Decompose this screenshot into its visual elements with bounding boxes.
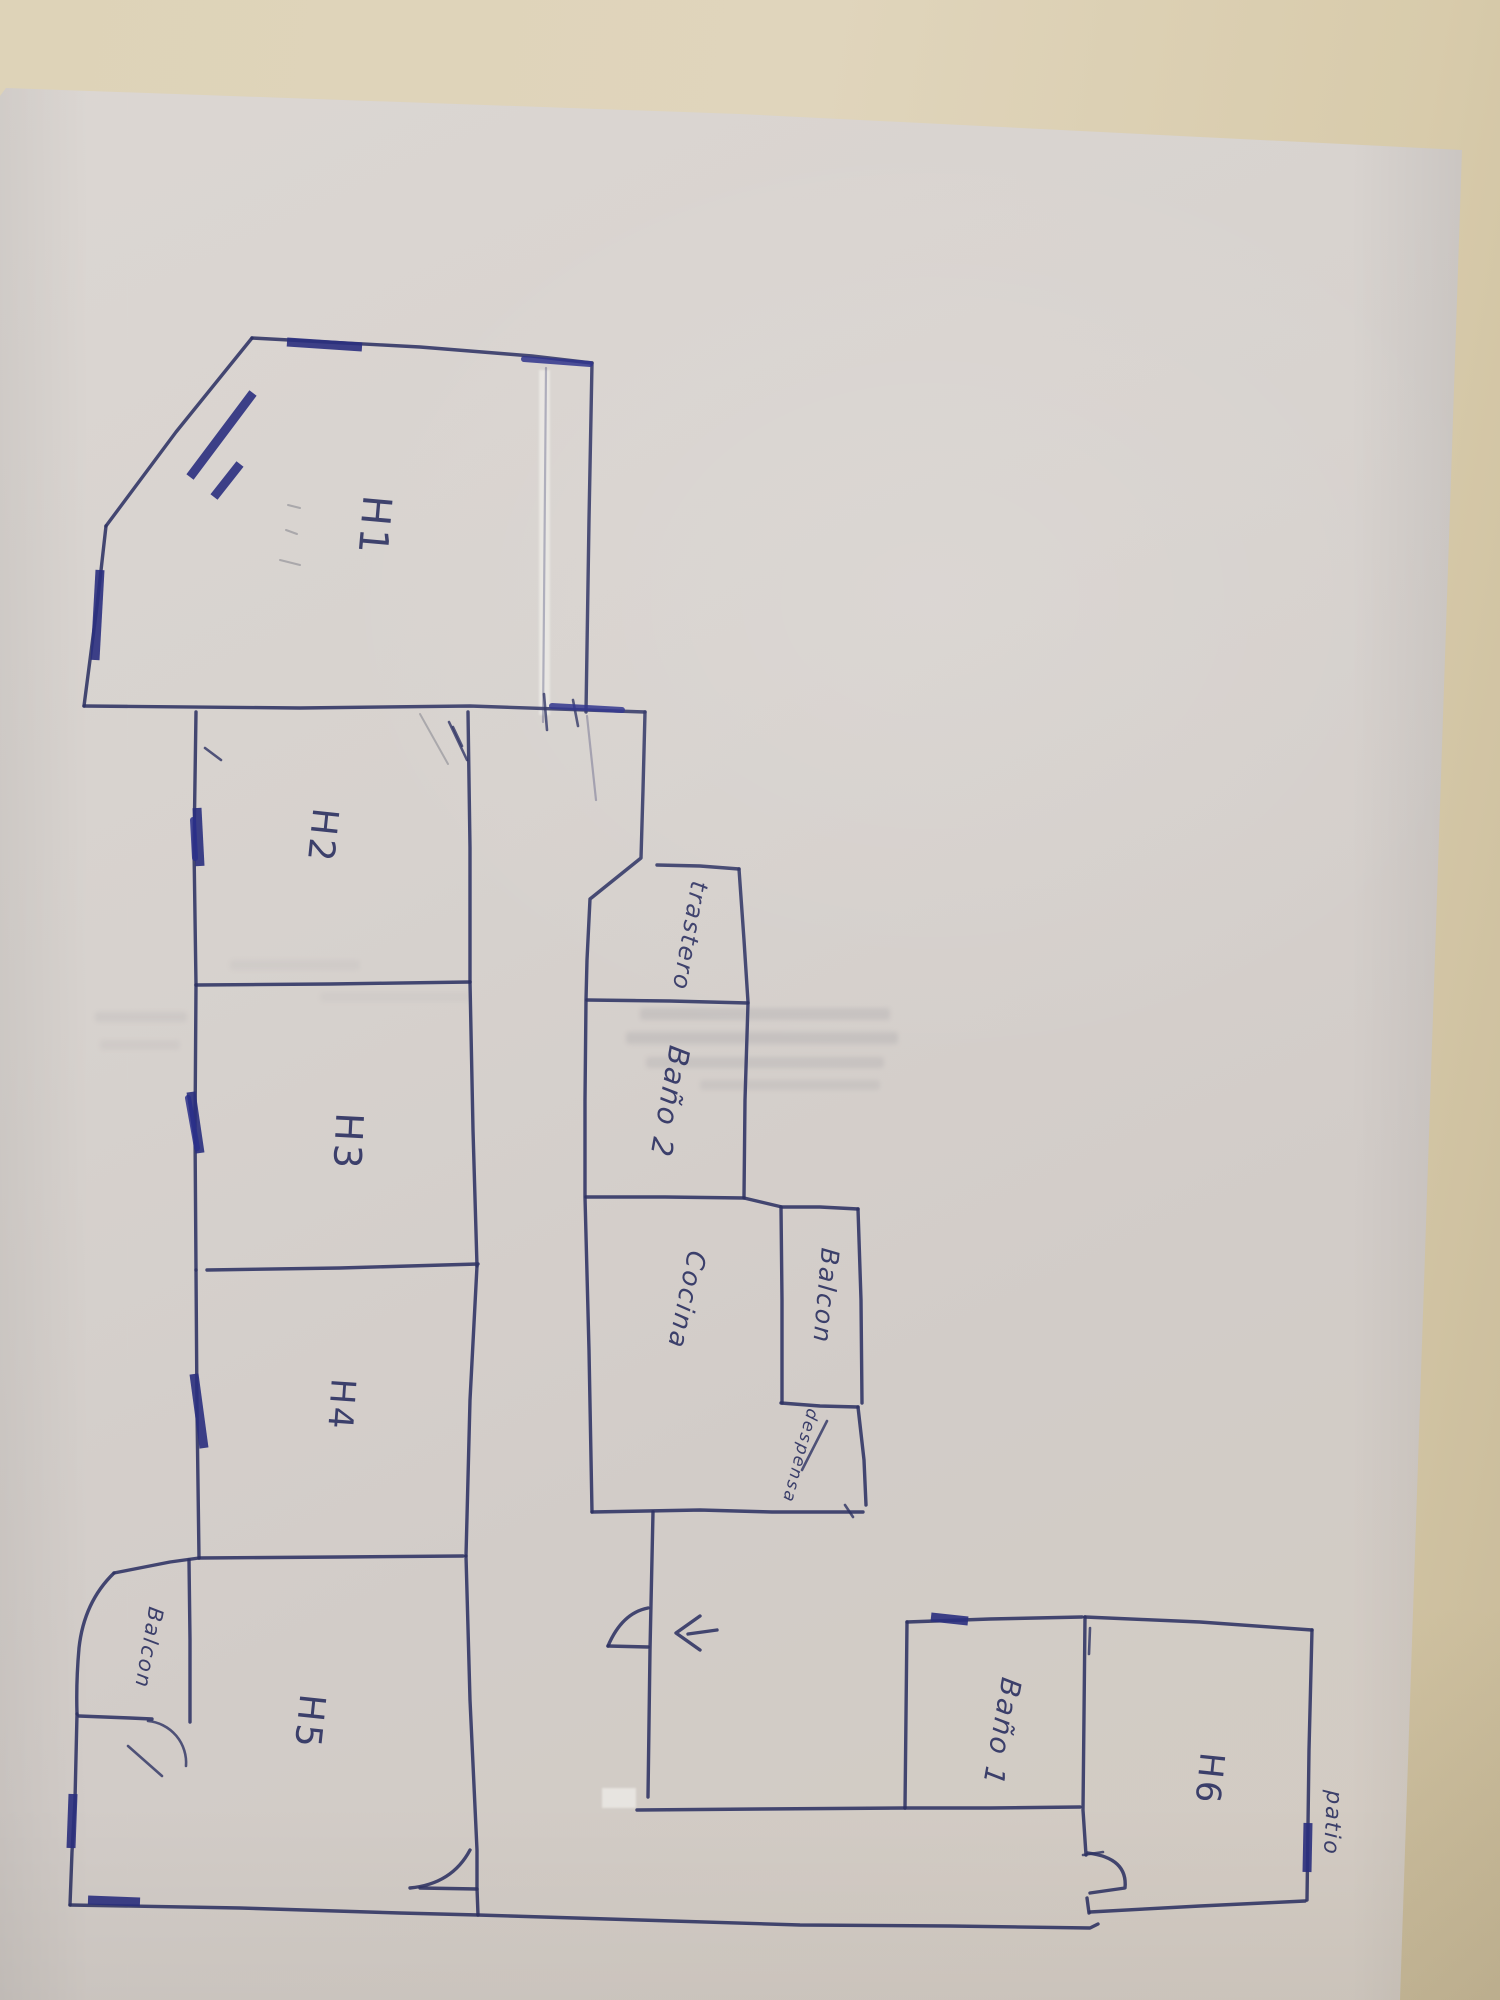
room-label-h3: H3 (324, 1112, 371, 1173)
floor-plan-drawing (0, 0, 1500, 2000)
door-arc-h5 (410, 1850, 477, 1889)
window-marker-h4 (194, 1374, 204, 1448)
door-arc-balcony (128, 1721, 186, 1776)
pencil-marks-h1 (280, 505, 300, 565)
room-h5-walls (70, 1556, 478, 1915)
window-marker-h2 (193, 808, 200, 866)
room-label-h6: H6 (1186, 1750, 1231, 1807)
room-label-h2: H2 (299, 806, 346, 866)
door-arc-h6 (1083, 1852, 1125, 1893)
room-label-h5: H5 (286, 1692, 333, 1752)
photo-of-floor-plan: H1 H2 H3 H4 H5 Balcon trastero Baño 2 Co… (0, 0, 1500, 2000)
room-label-h1: H1 (348, 493, 399, 558)
room-h1-walls (84, 338, 645, 800)
paper-sheet: H1 H2 H3 H4 H5 Balcon trastero Baño 2 Co… (0, 0, 1500, 2000)
door-arc-hallway (608, 1608, 648, 1647)
window-marker-bano1 (931, 1617, 968, 1621)
window-marker-h5 (71, 1794, 140, 1902)
room-label-h4: H4 (319, 1377, 363, 1433)
window-marker-h6-patio (1307, 1823, 1308, 1872)
window-marker-h3 (188, 1092, 200, 1153)
room-cocina-walls (592, 1198, 866, 1517)
hallway-walls (637, 1512, 905, 1810)
corridor-wall (420, 712, 645, 1512)
bottom-wall (478, 1915, 1098, 1928)
entrance-arrow (676, 1616, 717, 1650)
room-label-patio: patio (1318, 1790, 1346, 1857)
